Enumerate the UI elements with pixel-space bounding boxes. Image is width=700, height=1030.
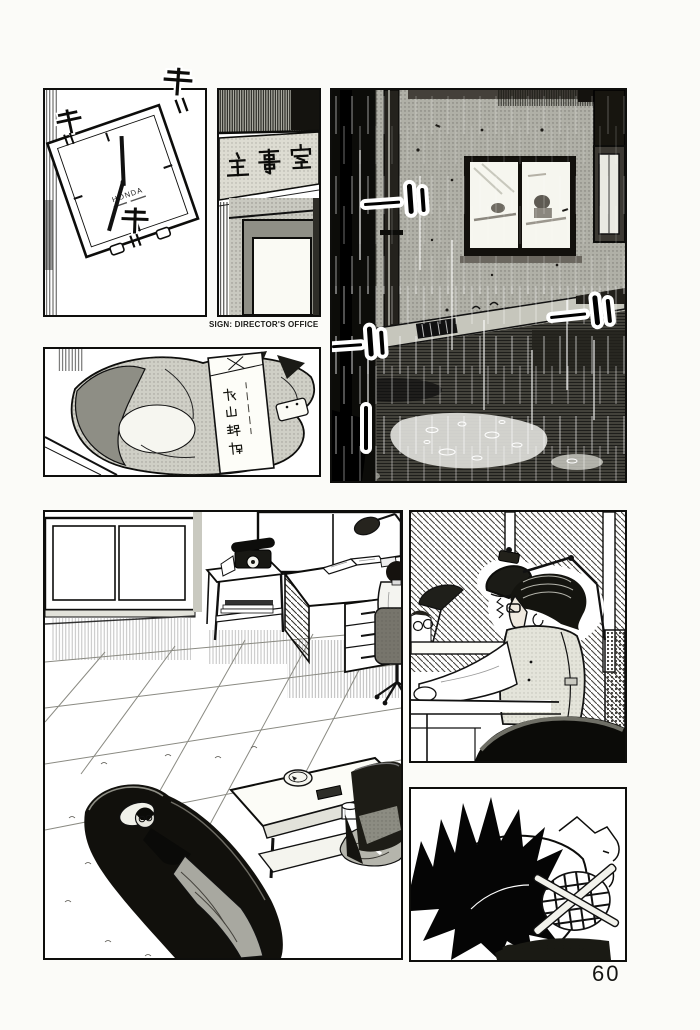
envelope: [208, 352, 274, 473]
office-art: [45, 512, 401, 958]
sfx-tick-1: 干: [161, 63, 195, 97]
ashtray: [284, 770, 312, 786]
panel-office-room: [43, 510, 403, 960]
panel-door-sign: 主事室: [217, 88, 321, 317]
sfx-tick-3-ditto: 〃: [128, 235, 142, 249]
jacket-art: [45, 349, 319, 475]
sfx-tick-3: 干: [119, 203, 150, 234]
rotary-phone: [231, 537, 276, 568]
manga-page: HONDA 干 〃: [0, 0, 700, 1030]
panel-jacket-envelope: 秋山瑞穂: [43, 347, 321, 477]
panel-sleeping-face: [409, 787, 627, 962]
sfx-tick-1-ditto: 〃: [173, 99, 189, 115]
door-art: [219, 90, 319, 315]
translation-caption: SIGN: DIRECTOR'S OFFICE: [209, 320, 318, 329]
door-sign-board: [219, 132, 319, 200]
panel-man-at-desk: [409, 510, 627, 763]
jacket: [72, 351, 314, 475]
director-art: [411, 512, 625, 761]
panel-rain-building: [330, 88, 627, 483]
page-number: 60: [592, 961, 620, 987]
sfx-tick-2: 干: [52, 103, 85, 136]
sfx-tick-2-ditto: 〃: [62, 134, 75, 147]
sleeping-art: [411, 789, 625, 960]
rain-building-art: [332, 90, 625, 481]
